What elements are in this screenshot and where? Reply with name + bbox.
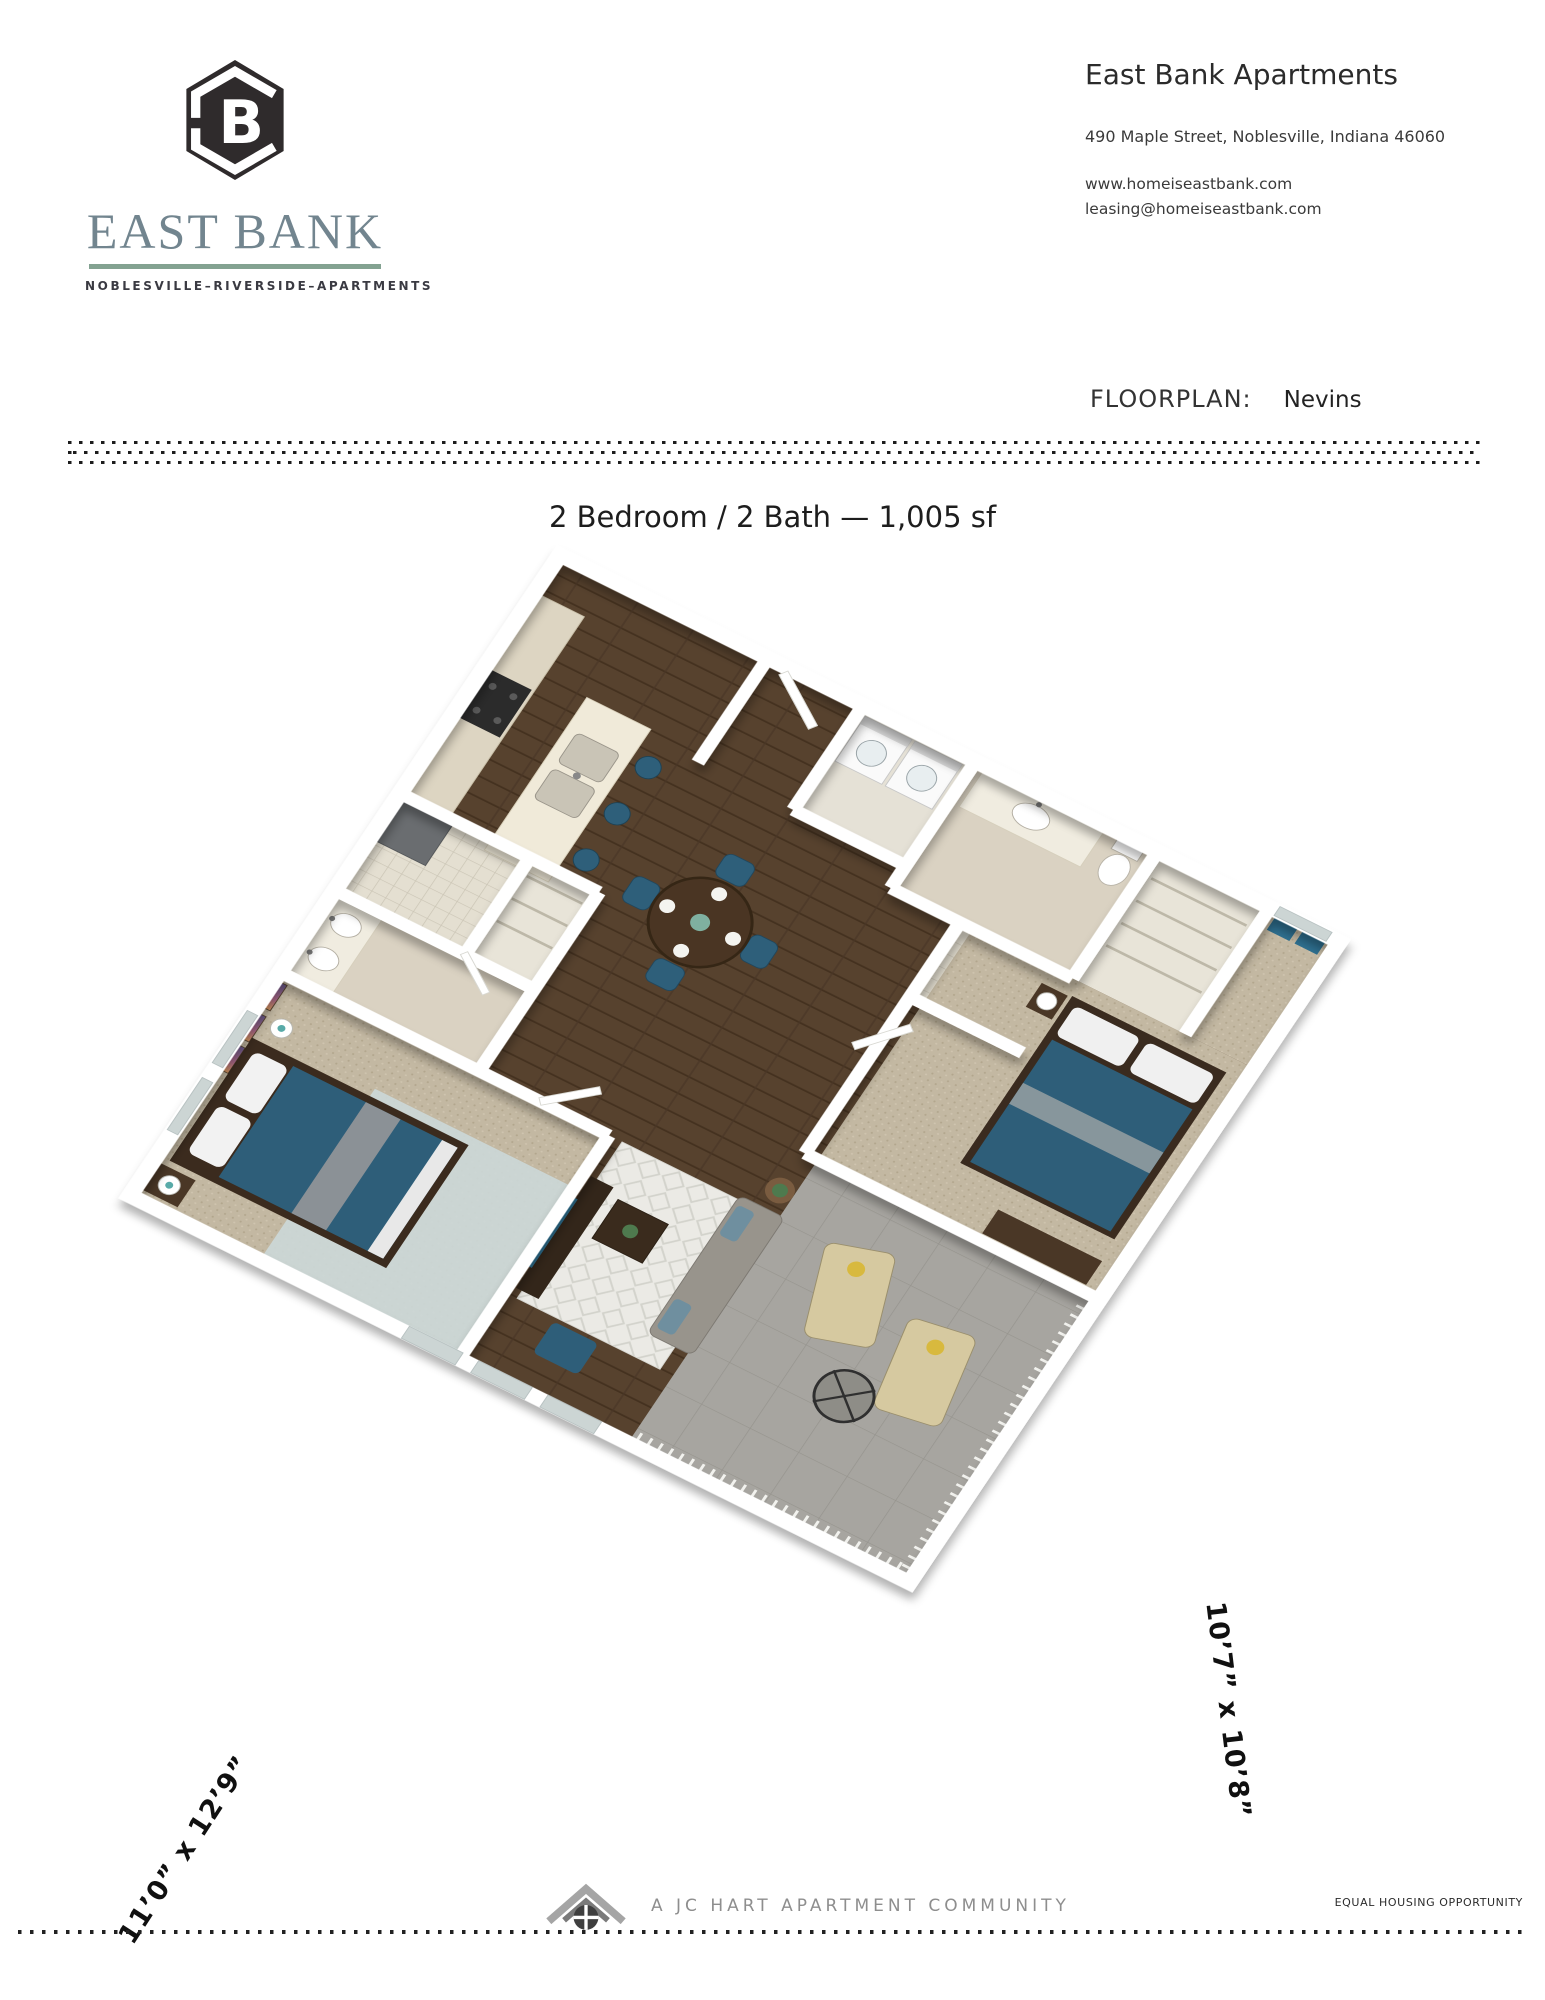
dot-row bbox=[68, 451, 1481, 454]
floorplan-name: Nevins bbox=[1284, 387, 1362, 413]
footer-dotted-line bbox=[18, 1930, 1526, 1934]
floorplan-name-line: FLOORPLAN: Nevins bbox=[1090, 385, 1362, 413]
brand-block: B EAST BANK NOBLESVILLE–RIVERSIDE–APARTM… bbox=[85, 60, 385, 293]
footer-community-band: A JC HART APARTMENT COMMUNITY bbox=[545, 1880, 1070, 1932]
property-website: www.homeiseastbank.com bbox=[1085, 172, 1515, 197]
floorplan-drawing bbox=[0, 520, 1545, 1700]
dot-row bbox=[68, 441, 1481, 444]
brand-rule bbox=[89, 264, 381, 269]
dot-row bbox=[68, 461, 1481, 464]
dimension-label-bedroom-1: 11’0” x 12’9” bbox=[106, 1741, 265, 1960]
community-text: A JC HART APARTMENT COMMUNITY bbox=[651, 1896, 1070, 1916]
brand-wordmark: EAST BANK bbox=[85, 202, 385, 260]
hexagon-b-logo-icon: B bbox=[183, 60, 287, 180]
logo-letter: B bbox=[218, 88, 264, 158]
floorplan-3d-render: 10’7” x 10’8” 11’0” x 12’9” 12’3” x 19’9… bbox=[0, 520, 1545, 1700]
contact-block: East Bank Apartments 490 Maple Street, N… bbox=[1085, 58, 1515, 222]
equal-housing-text: EQUAL HOUSING OPPORTUNITY bbox=[1335, 1896, 1523, 1909]
floorplan-label: FLOORPLAN: bbox=[1090, 385, 1252, 413]
property-name: East Bank Apartments bbox=[1085, 58, 1515, 91]
property-address: 490 Maple Street, Noblesville, Indiana 4… bbox=[1085, 127, 1515, 146]
property-email: leasing@homeiseastbank.com bbox=[1085, 197, 1515, 222]
flyer-page: B EAST BANK NOBLESVILLE–RIVERSIDE–APARTM… bbox=[0, 0, 1545, 2000]
brand-tagline: NOBLESVILLE–RIVERSIDE–APARTMENTS bbox=[85, 279, 385, 293]
jc-hart-house-icon bbox=[545, 1880, 627, 1932]
dotted-divider bbox=[68, 441, 1481, 471]
